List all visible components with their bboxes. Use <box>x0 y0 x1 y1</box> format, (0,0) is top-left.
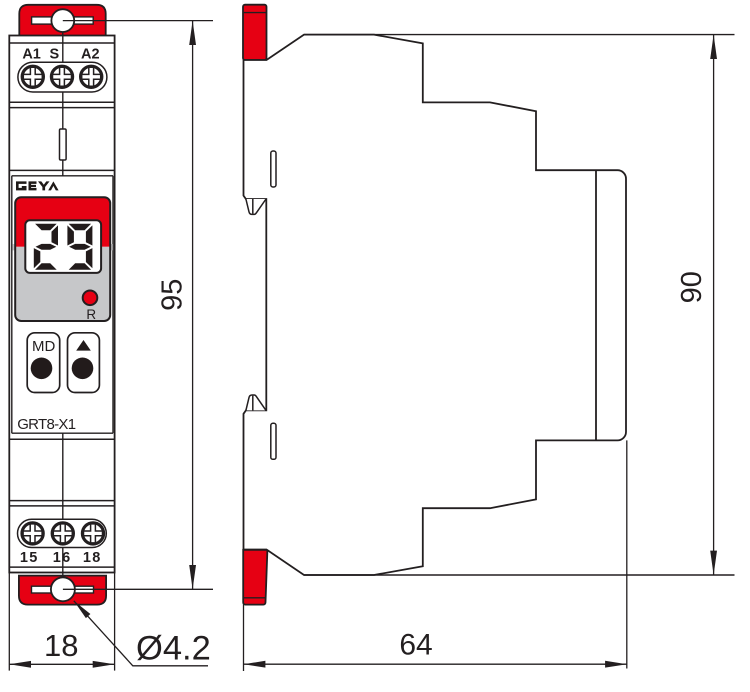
svg-text:A1: A1 <box>22 47 41 63</box>
svg-text:Ø4.2: Ø4.2 <box>136 630 211 668</box>
svg-text:64: 64 <box>399 629 432 662</box>
svg-text:95: 95 <box>156 279 188 311</box>
svg-text:16: 16 <box>53 550 72 566</box>
svg-text:18: 18 <box>83 550 102 566</box>
svg-text:MD: MD <box>32 338 55 355</box>
svg-text:S: S <box>49 47 59 63</box>
svg-text:R: R <box>86 307 96 322</box>
svg-text:15: 15 <box>20 550 39 566</box>
svg-text:90: 90 <box>676 271 708 303</box>
svg-text:A2: A2 <box>81 47 100 63</box>
svg-text:GRT8-X1: GRT8-X1 <box>17 416 76 433</box>
svg-text:18: 18 <box>44 628 78 663</box>
